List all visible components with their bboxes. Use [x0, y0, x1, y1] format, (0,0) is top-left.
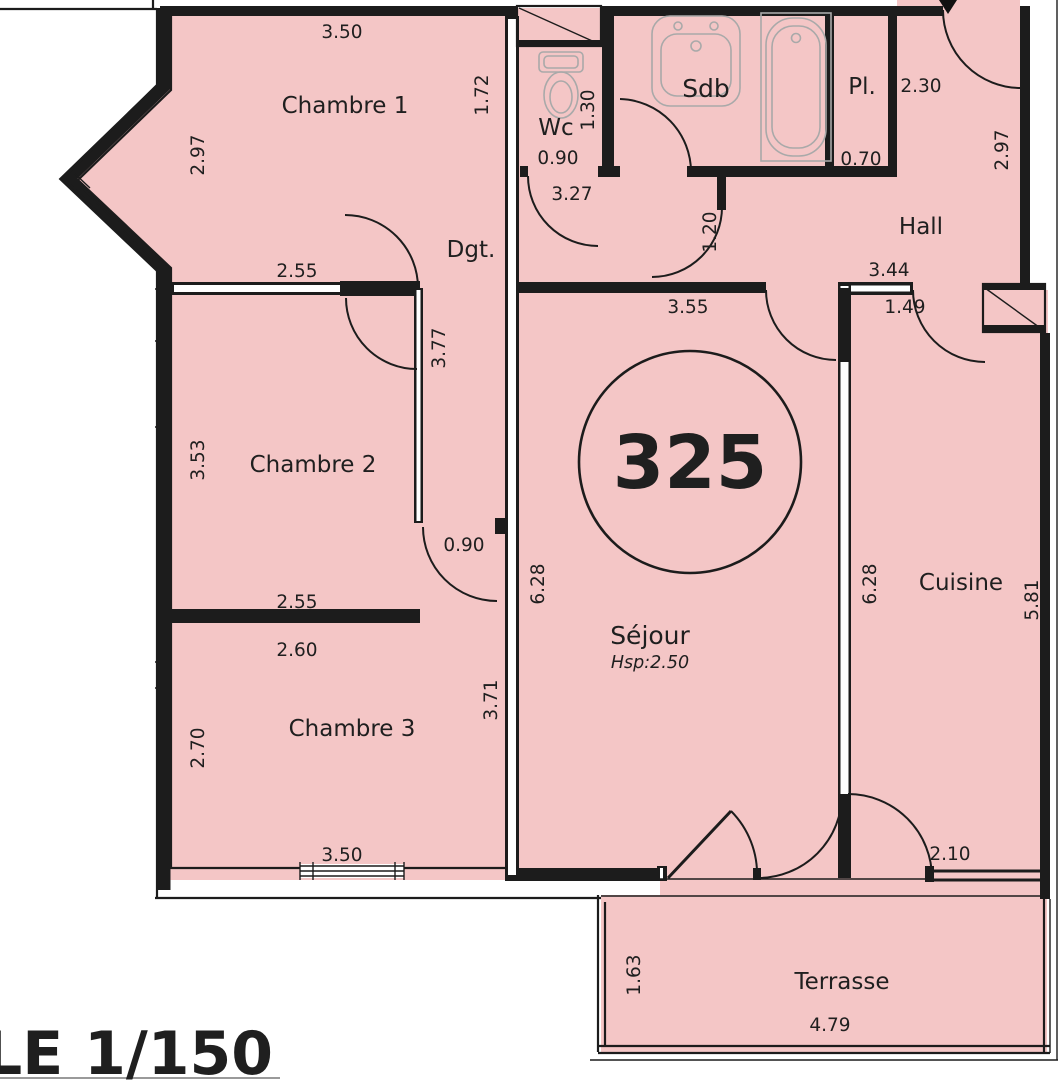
dim-cuisine-left: 6.28	[860, 563, 881, 604]
dim-ch3-left: 2.70	[188, 727, 209, 768]
dim-ch1-width: 3.50	[321, 22, 362, 43]
room-label-pl: Pl.	[848, 74, 876, 100]
unit-number: 325	[613, 420, 767, 506]
room-label-hall: Hall	[899, 214, 943, 240]
room-label-cuisine: Cuisine	[919, 570, 1003, 596]
dim-sejour-height: 6.28	[528, 563, 549, 604]
dim-sejour-width: 3.55	[667, 297, 708, 318]
room-label-chambre1: Chambre 1	[282, 93, 409, 119]
dim-ch3-top: 2.60	[276, 640, 317, 661]
dim-dgt-length: 3.77	[429, 327, 450, 368]
dim-ch1-left: 2.97	[188, 134, 209, 175]
floor-plan: 325 Chambre 1 Wc Sdb Pl. Hall Dgt. Chamb…	[0, 0, 1062, 1080]
dim-ch3-right: 3.71	[481, 679, 502, 720]
dim-ch2-bottom: 2.55	[276, 592, 317, 613]
room-label-sejour: Séjour	[610, 621, 690, 650]
room-label-chambre3: Chambre 3	[289, 716, 416, 742]
dim-hall-right: 2.97	[992, 129, 1013, 170]
room-label-sdb: Sdb	[682, 74, 730, 103]
dim-terrace-doors: 2.10	[929, 844, 970, 865]
floor-plan-svg: 325 Chambre 1 Wc Sdb Pl. Hall Dgt. Chamb…	[0, 0, 1062, 1080]
dim-hall-width: 3.44	[868, 260, 909, 281]
dim-passage: 1.20	[700, 211, 721, 252]
dim-kitchen-door: 1.49	[884, 297, 925, 318]
room-label-dgt: Dgt.	[447, 237, 496, 263]
dim-pl-width: 0.70	[840, 149, 881, 170]
dim-ch2-left: 3.53	[188, 439, 209, 480]
room-label-sejour-ceiling: Hsp:2.50	[611, 653, 689, 673]
dim-ch3-width: 3.50	[321, 845, 362, 866]
dim-terrace-width: 4.79	[809, 1015, 850, 1036]
dim-wc-width: 0.90	[537, 148, 578, 169]
dim-terrace-depth: 1.63	[624, 954, 645, 995]
dim-ch1-right: 1.72	[472, 74, 493, 115]
dim-corridor: 3.27	[551, 184, 592, 205]
room-label-chambre2: Chambre 2	[250, 452, 377, 478]
dim-wc-depth: 1.30	[578, 89, 599, 130]
scale-label: LE 1/150	[0, 1019, 273, 1080]
dim-entry-width: 2.30	[900, 76, 941, 97]
scale-label-group: LE 1/150	[0, 1019, 280, 1080]
dim-ch2-top: 2.55	[276, 261, 317, 282]
room-label-wc: Wc	[538, 115, 573, 141]
room-label-terrasse: Terrasse	[793, 969, 889, 995]
dim-ch2-door: 0.90	[443, 535, 484, 556]
dim-cuisine-right: 5.81	[1022, 579, 1043, 620]
